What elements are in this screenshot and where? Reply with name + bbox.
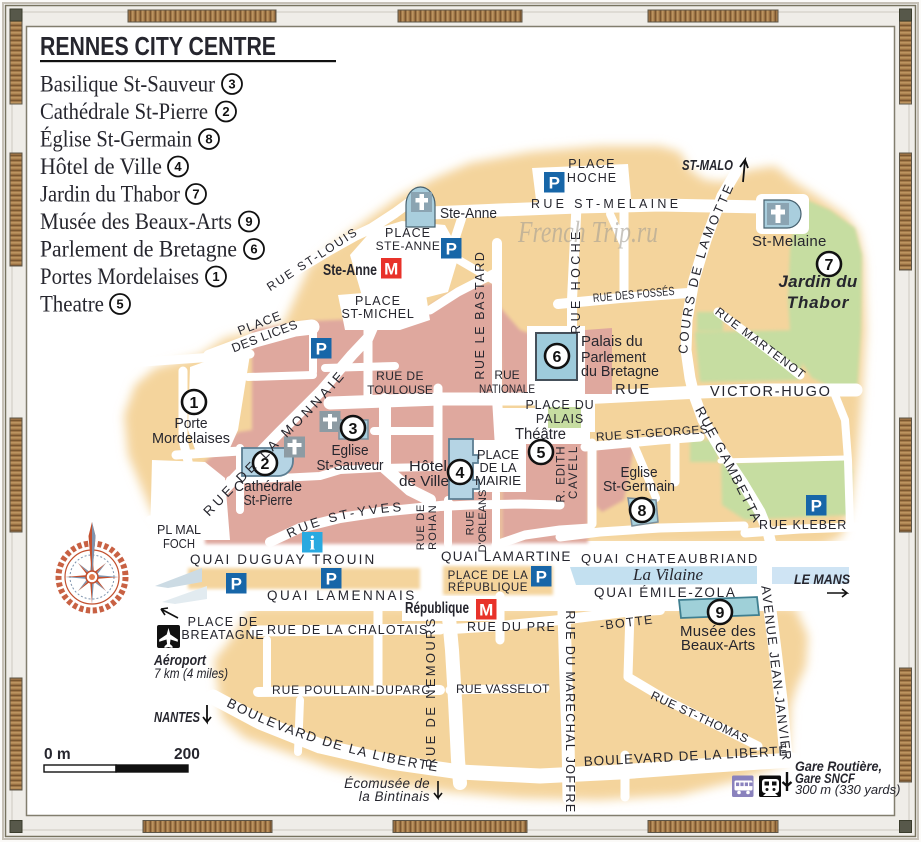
svg-text:P: P (326, 569, 337, 588)
svg-text:6: 6 (553, 349, 562, 366)
svg-text:PLACE: PLACE (568, 157, 616, 171)
svg-text:QUAI LAMENNAIS: QUAI LAMENNAIS (267, 588, 417, 603)
svg-text:PLACE DE: PLACE DE (188, 615, 259, 629)
svg-text:4: 4 (174, 159, 182, 174)
svg-text:VICTOR-HUGO: VICTOR-HUGO (710, 384, 832, 400)
svg-text:ROHAN: ROHAN (427, 504, 439, 550)
svg-text:4: 4 (456, 465, 465, 482)
svg-text:M: M (384, 259, 398, 278)
svg-text:200: 200 (174, 746, 200, 763)
svg-text:PLACE: PLACE (355, 294, 401, 308)
svg-text:7 km (4 miles): 7 km (4 miles) (154, 666, 228, 681)
svg-text:P: P (316, 339, 327, 358)
svg-text:1: 1 (212, 269, 219, 284)
svg-text:République: République (405, 600, 469, 617)
svg-text:PLACE: PLACE (385, 226, 431, 240)
svg-text:de Ville: de Ville (399, 473, 449, 490)
svg-text:RUE POULLAIN-DUPARC: RUE POULLAIN-DUPARC (272, 683, 431, 697)
svg-text:Palais du: Palais du (581, 333, 643, 350)
svg-text:R. EDITH: R. EDITH (556, 445, 568, 502)
svg-text:la Bintinais: la Bintinais (359, 789, 430, 804)
svg-text:RÉPUBLIQUE: RÉPUBLIQUE (448, 581, 528, 594)
svg-text:P: P (536, 567, 547, 586)
svg-text:RENNES CITY CENTRE: RENNES CITY CENTRE (40, 31, 276, 61)
svg-text:NANTES: NANTES (154, 709, 200, 726)
svg-text:RUE: RUE (465, 511, 477, 536)
svg-text:St-Pierre: St-Pierre (244, 492, 293, 509)
svg-text:Musée des Beaux-Arts: Musée des Beaux-Arts (40, 209, 232, 235)
svg-text:RUE DU MARECHAL JOFFRE: RUE DU MARECHAL JOFFRE (563, 610, 577, 813)
svg-text:Ste-Anne: Ste-Anne (440, 205, 497, 222)
svg-text:St-Germain: St-Germain (603, 478, 675, 495)
svg-text:1: 1 (190, 395, 199, 412)
svg-text:PLACE: PLACE (477, 448, 519, 462)
svg-text:Thabor: Thabor (787, 293, 850, 312)
svg-text:RUE: RUE (494, 368, 519, 382)
svg-text:Jardin du Thabor: Jardin du Thabor (40, 182, 180, 208)
svg-text:M: M (479, 600, 493, 619)
svg-text:NATIONALE: NATIONALE (479, 382, 535, 396)
svg-text:P: P (446, 239, 457, 258)
svg-text:RUE KLEBER: RUE KLEBER (759, 518, 847, 532)
svg-text:Ste-Anne: Ste-Anne (323, 262, 377, 279)
svg-text:ST-MALO: ST-MALO (682, 157, 733, 174)
svg-text:5: 5 (116, 297, 123, 312)
svg-text:Theatre: Theatre (40, 292, 104, 318)
svg-text:du Bretagne: du Bretagne (581, 363, 659, 380)
svg-text:RUE DE: RUE DE (376, 369, 424, 383)
svg-text:0 m: 0 m (44, 746, 71, 763)
svg-text:French Trip.ru: French Trip.ru (517, 214, 658, 249)
svg-text:3: 3 (349, 421, 358, 438)
svg-text:5: 5 (537, 445, 546, 462)
svg-text:3: 3 (228, 77, 235, 92)
svg-text:La Vilaine: La Vilaine (632, 565, 703, 584)
svg-text:MAIRIE: MAIRIE (475, 474, 521, 488)
svg-text:P: P (231, 574, 242, 593)
svg-text:QUAI ÉMILE-ZOLA: QUAI ÉMILE-ZOLA (594, 585, 737, 600)
svg-text:8: 8 (205, 132, 212, 147)
svg-text:STE-ANNE: STE-ANNE (376, 239, 441, 253)
svg-text:7: 7 (192, 187, 199, 202)
svg-text:Cathédrale St-Pierre: Cathédrale St-Pierre (40, 99, 208, 125)
svg-text:PL MAL: PL MAL (157, 522, 201, 537)
svg-text:CAVELL: CAVELL (568, 445, 580, 499)
svg-text:DE LA: DE LA (480, 461, 518, 475)
svg-text:D'ORLEANS: D'ORLEANS (477, 490, 489, 553)
svg-text:Beaux-Arts: Beaux-Arts (681, 637, 755, 654)
svg-text:Mordelaises: Mordelaises (152, 430, 230, 447)
svg-text:Église St-Germain: Église St-Germain (40, 127, 192, 153)
svg-text:QUAI DUGUAY TROUIN: QUAI DUGUAY TROUIN (190, 552, 376, 567)
svg-text:RUE DE LA CHALOTAIS: RUE DE LA CHALOTAIS (267, 623, 429, 637)
svg-text:8: 8 (638, 503, 647, 520)
svg-text:P: P (811, 496, 822, 515)
svg-text:QUAI LAMARTINE: QUAI LAMARTINE (441, 549, 572, 564)
svg-text:TOULOUSE: TOULOUSE (367, 383, 433, 397)
svg-text:St-Melaine: St-Melaine (752, 233, 827, 250)
svg-text:HOCHE: HOCHE (567, 171, 617, 185)
svg-text:Parlement de Bretagne: Parlement de Bretagne (40, 237, 237, 263)
svg-text:Théâtre: Théâtre (515, 426, 566, 443)
svg-text:300 m (330 yards): 300 m (330 yards) (795, 782, 901, 797)
svg-text:LE MANS: LE MANS (794, 571, 851, 587)
svg-text:PLACE DU: PLACE DU (526, 398, 595, 412)
svg-text:BREATAGNE: BREATAGNE (181, 628, 264, 642)
svg-text:9: 9 (245, 214, 252, 229)
svg-text:RUE ST-MELAINE: RUE ST-MELAINE (531, 197, 681, 211)
svg-text:RUE DE: RUE DE (415, 504, 427, 550)
svg-text:PLACE DE LA: PLACE DE LA (448, 570, 529, 582)
svg-text:ST-MICHEL: ST-MICHEL (342, 307, 415, 321)
svg-text:PALAIS: PALAIS (536, 412, 584, 426)
svg-text:Hôtel de Ville: Hôtel de Ville (40, 154, 162, 180)
svg-text:Portes Mordelaises: Portes Mordelaises (40, 264, 199, 290)
svg-text:St-Sauveur: St-Sauveur (317, 457, 384, 474)
svg-text:6: 6 (250, 242, 257, 257)
svg-text:QUAI CHATEAUBRIAND: QUAI CHATEAUBRIAND (581, 551, 759, 566)
svg-text:Basilique St-Sauveur: Basilique St-Sauveur (40, 72, 215, 98)
svg-text:RUE: RUE (615, 382, 651, 398)
svg-text:Jardin du: Jardin du (778, 272, 858, 291)
svg-text:RUE DU PRE: RUE DU PRE (467, 620, 556, 634)
svg-text:RUE LE BASTARD: RUE LE BASTARD (473, 250, 487, 379)
svg-text:RUE VASSELOT: RUE VASSELOT (456, 682, 550, 696)
svg-text:FOCH: FOCH (163, 536, 195, 551)
svg-text:P: P (549, 173, 560, 192)
svg-text:9: 9 (716, 605, 725, 622)
svg-text:RUE DE NEMOURS: RUE DE NEMOURS (423, 616, 438, 767)
svg-text:2: 2 (222, 104, 229, 119)
